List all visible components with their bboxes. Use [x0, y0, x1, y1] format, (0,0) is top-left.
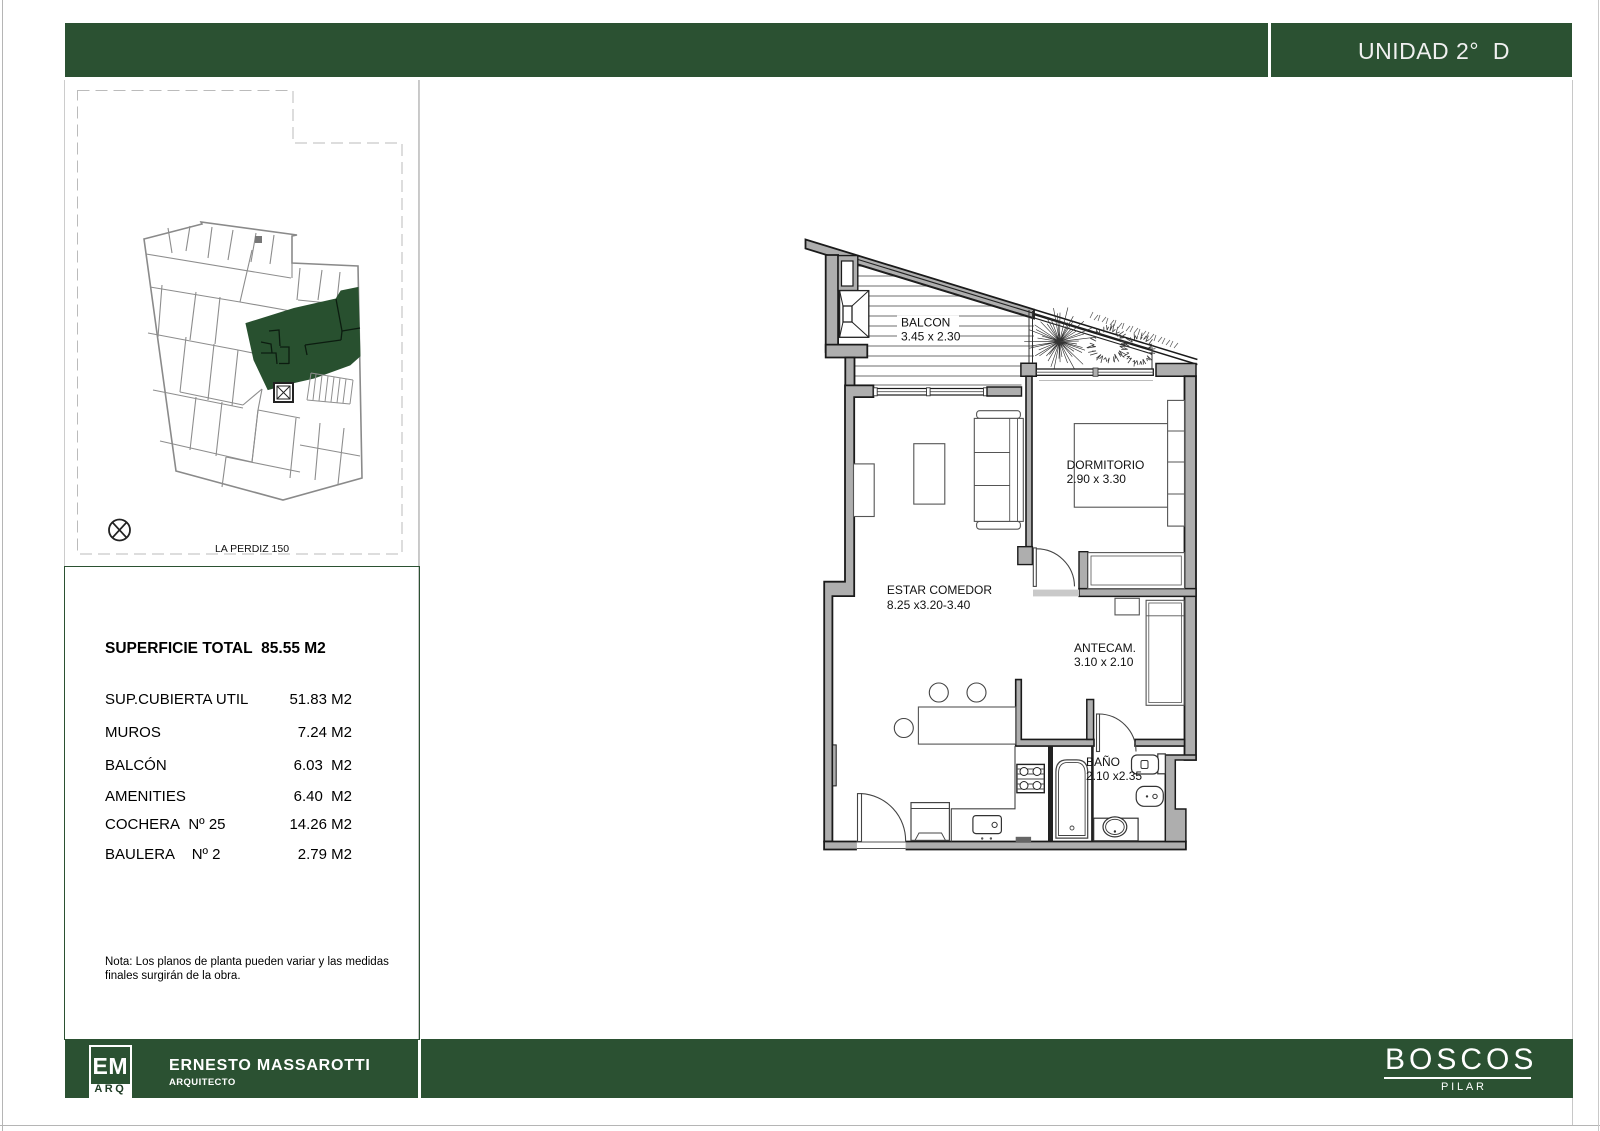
svg-text:2.10 x2.35: 2.10 x2.35 [1086, 769, 1142, 783]
svg-text:LA PERDIZ 150: LA PERDIZ 150 [215, 543, 289, 555]
svg-text:3.45 x 2.30: 3.45 x 2.30 [901, 330, 961, 344]
svg-text:ESTAR COMEDOR: ESTAR COMEDOR [887, 583, 992, 597]
svg-text:BAÑO: BAÑO [1086, 755, 1120, 769]
svg-text:3.10 x 2.10: 3.10 x 2.10 [1074, 655, 1134, 669]
svg-text:2.90 x 3.30: 2.90 x 3.30 [1067, 472, 1127, 486]
svg-text:BALCON: BALCON [901, 316, 950, 330]
svg-text:DORMITORIO: DORMITORIO [1067, 458, 1145, 472]
svg-text:8.25 x3.20-3.40: 8.25 x3.20-3.40 [887, 598, 971, 612]
svg-text:ANTECAM.: ANTECAM. [1074, 641, 1136, 655]
